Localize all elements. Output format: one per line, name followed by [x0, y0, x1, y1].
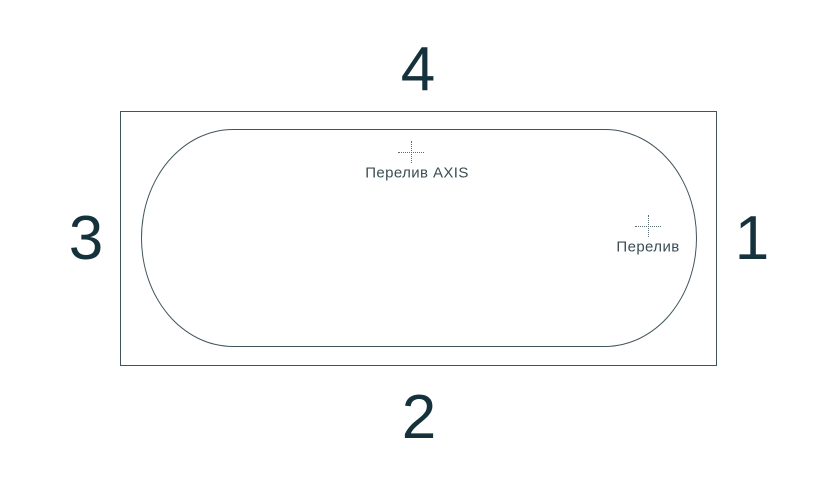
side-number-left: 3	[69, 208, 103, 270]
side-number-bottom: 2	[402, 387, 436, 449]
overflow-axis-label: Перелив AXIS	[365, 165, 469, 182]
crosshair-vertical-line	[648, 215, 649, 237]
bathtub-top-view-diagram: 4 2 3 1 Перелив AXIS Перелив	[0, 0, 828, 480]
crosshair-icon-overflow-standard[interactable]	[635, 215, 661, 237]
crosshair-icon-overflow-axis[interactable]	[398, 141, 424, 163]
overflow-standard-label: Перелив	[616, 239, 679, 256]
crosshair-vertical-line	[411, 141, 412, 163]
side-number-top: 4	[401, 39, 435, 101]
side-number-right: 1	[735, 208, 769, 270]
